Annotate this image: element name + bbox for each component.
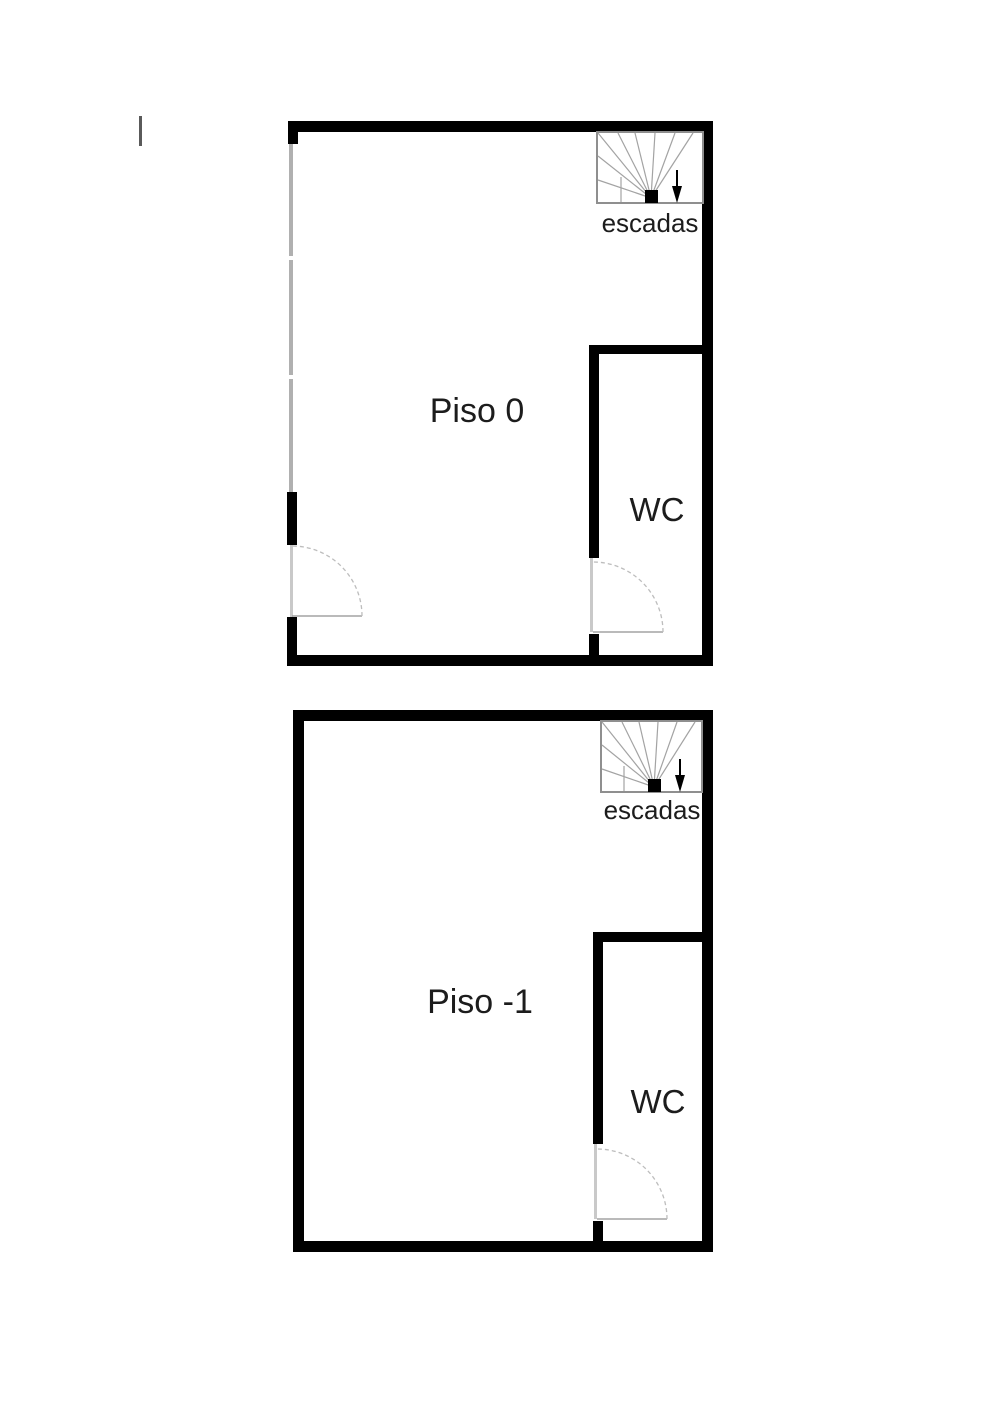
- piso-minus-1-wc-door-swing-icon: [594, 1144, 667, 1219]
- stairs-icon: [601, 721, 702, 792]
- floor-plan-drawing: Piso 0 escadas WC: [0, 0, 1000, 1418]
- piso-0-wc-door-swing-icon: [590, 558, 663, 632]
- stray-mark: [139, 116, 142, 146]
- piso-0-label: Piso 0: [430, 392, 525, 430]
- piso-minus-1-wc-label: WC: [631, 1083, 686, 1120]
- piso-0-window-wall: [289, 144, 293, 492]
- stairs-icon: [597, 132, 703, 203]
- piso-0-entry-door-swing-icon: [290, 545, 362, 617]
- stairs-down-arrow-icon: [675, 775, 685, 792]
- piso-minus-1-stairs-label: escadas: [604, 795, 701, 825]
- piso-0-wc-label: WC: [630, 491, 685, 528]
- floor-plans-canvas: Piso 0 escadas WC: [0, 0, 1000, 1418]
- piso-minus-1-label: Piso -1: [427, 983, 533, 1021]
- plan-piso-0: Piso 0 escadas WC: [287, 121, 713, 666]
- plan-piso-minus-1: Piso -1 escadas WC: [293, 710, 713, 1252]
- piso-0-stairs-label: escadas: [602, 208, 699, 238]
- stairs-down-arrow-icon: [672, 186, 682, 203]
